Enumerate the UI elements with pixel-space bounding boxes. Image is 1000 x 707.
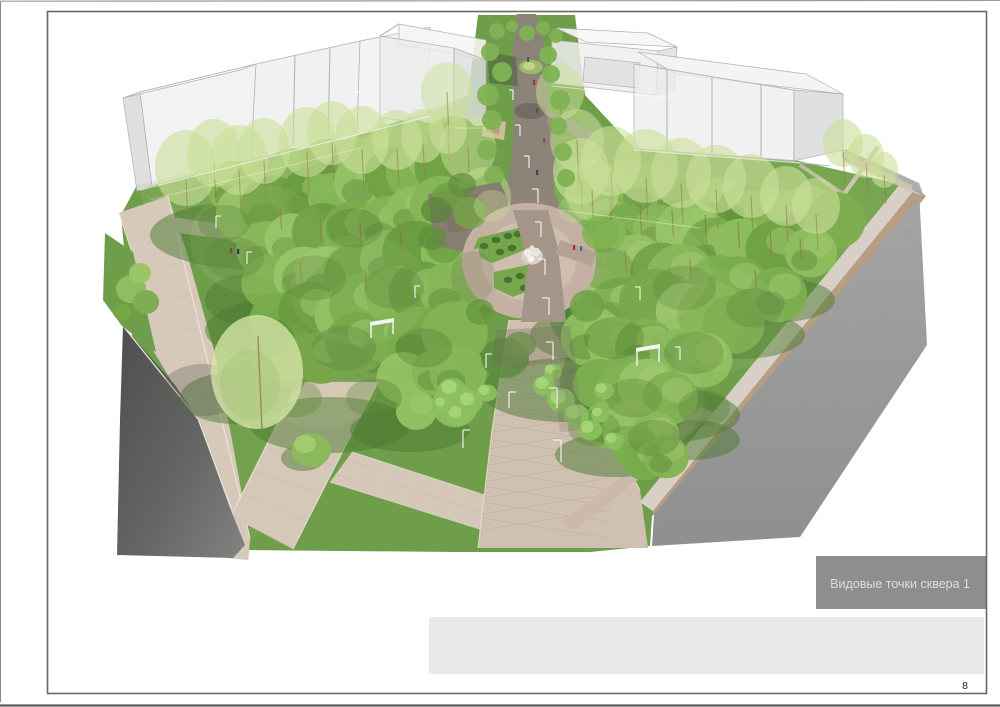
svg-text:8: 8: [962, 680, 968, 692]
svg-text:Видовые точки сквера 1: Видовые точки сквера 1: [830, 577, 970, 591]
